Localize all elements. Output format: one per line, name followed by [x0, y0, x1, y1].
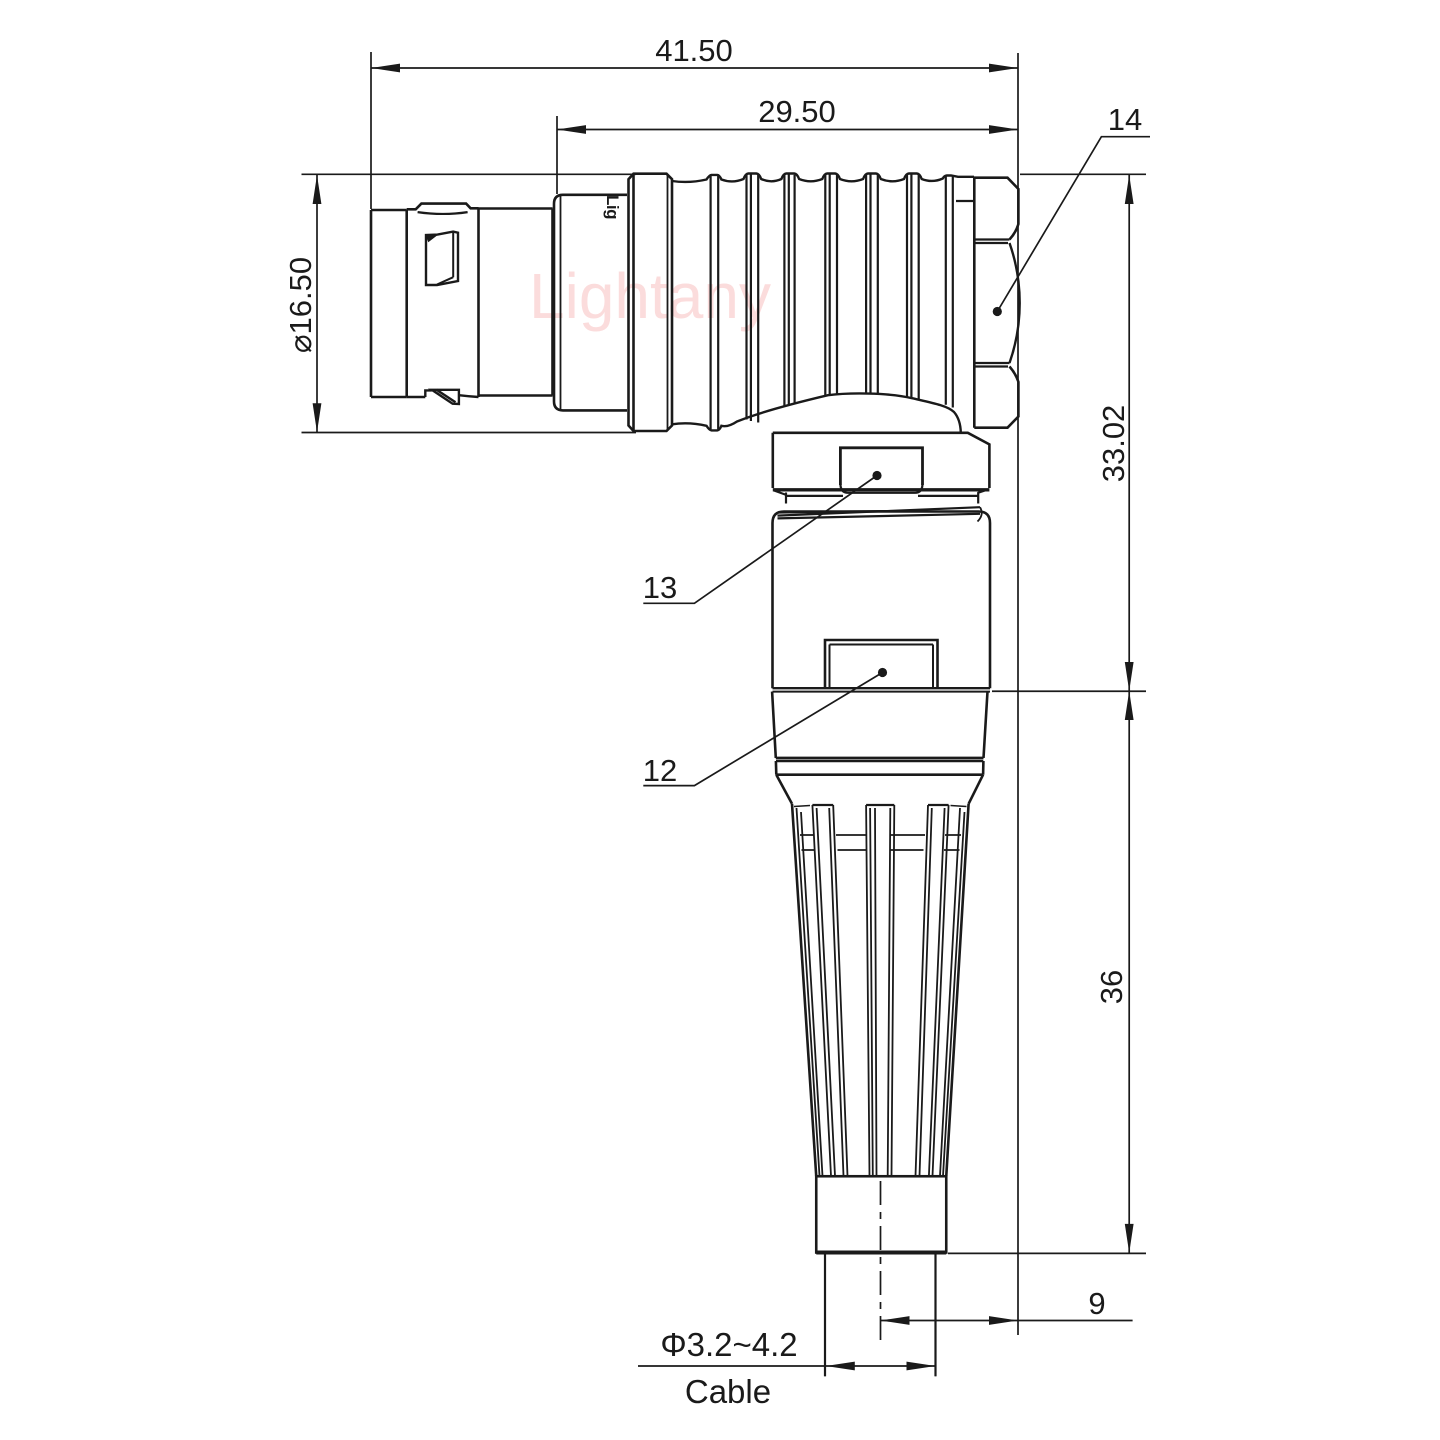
svg-text:13: 13	[643, 570, 677, 605]
svg-text:41.50: 41.50	[655, 33, 733, 68]
svg-text:Cable: Cable	[685, 1373, 771, 1410]
svg-text:36: 36	[1094, 970, 1129, 1004]
svg-text:Lig: Lig	[603, 195, 622, 219]
svg-text:12: 12	[643, 753, 677, 788]
svg-text:⌀16.50: ⌀16.50	[283, 257, 318, 353]
svg-text:33.02: 33.02	[1096, 405, 1131, 483]
svg-text:Lightany: Lightany	[529, 260, 771, 332]
svg-text:Φ3.2~4.2: Φ3.2~4.2	[660, 1326, 797, 1363]
svg-text:29.50: 29.50	[758, 94, 836, 129]
svg-text:9: 9	[1088, 1286, 1105, 1321]
svg-text:14: 14	[1108, 102, 1142, 137]
